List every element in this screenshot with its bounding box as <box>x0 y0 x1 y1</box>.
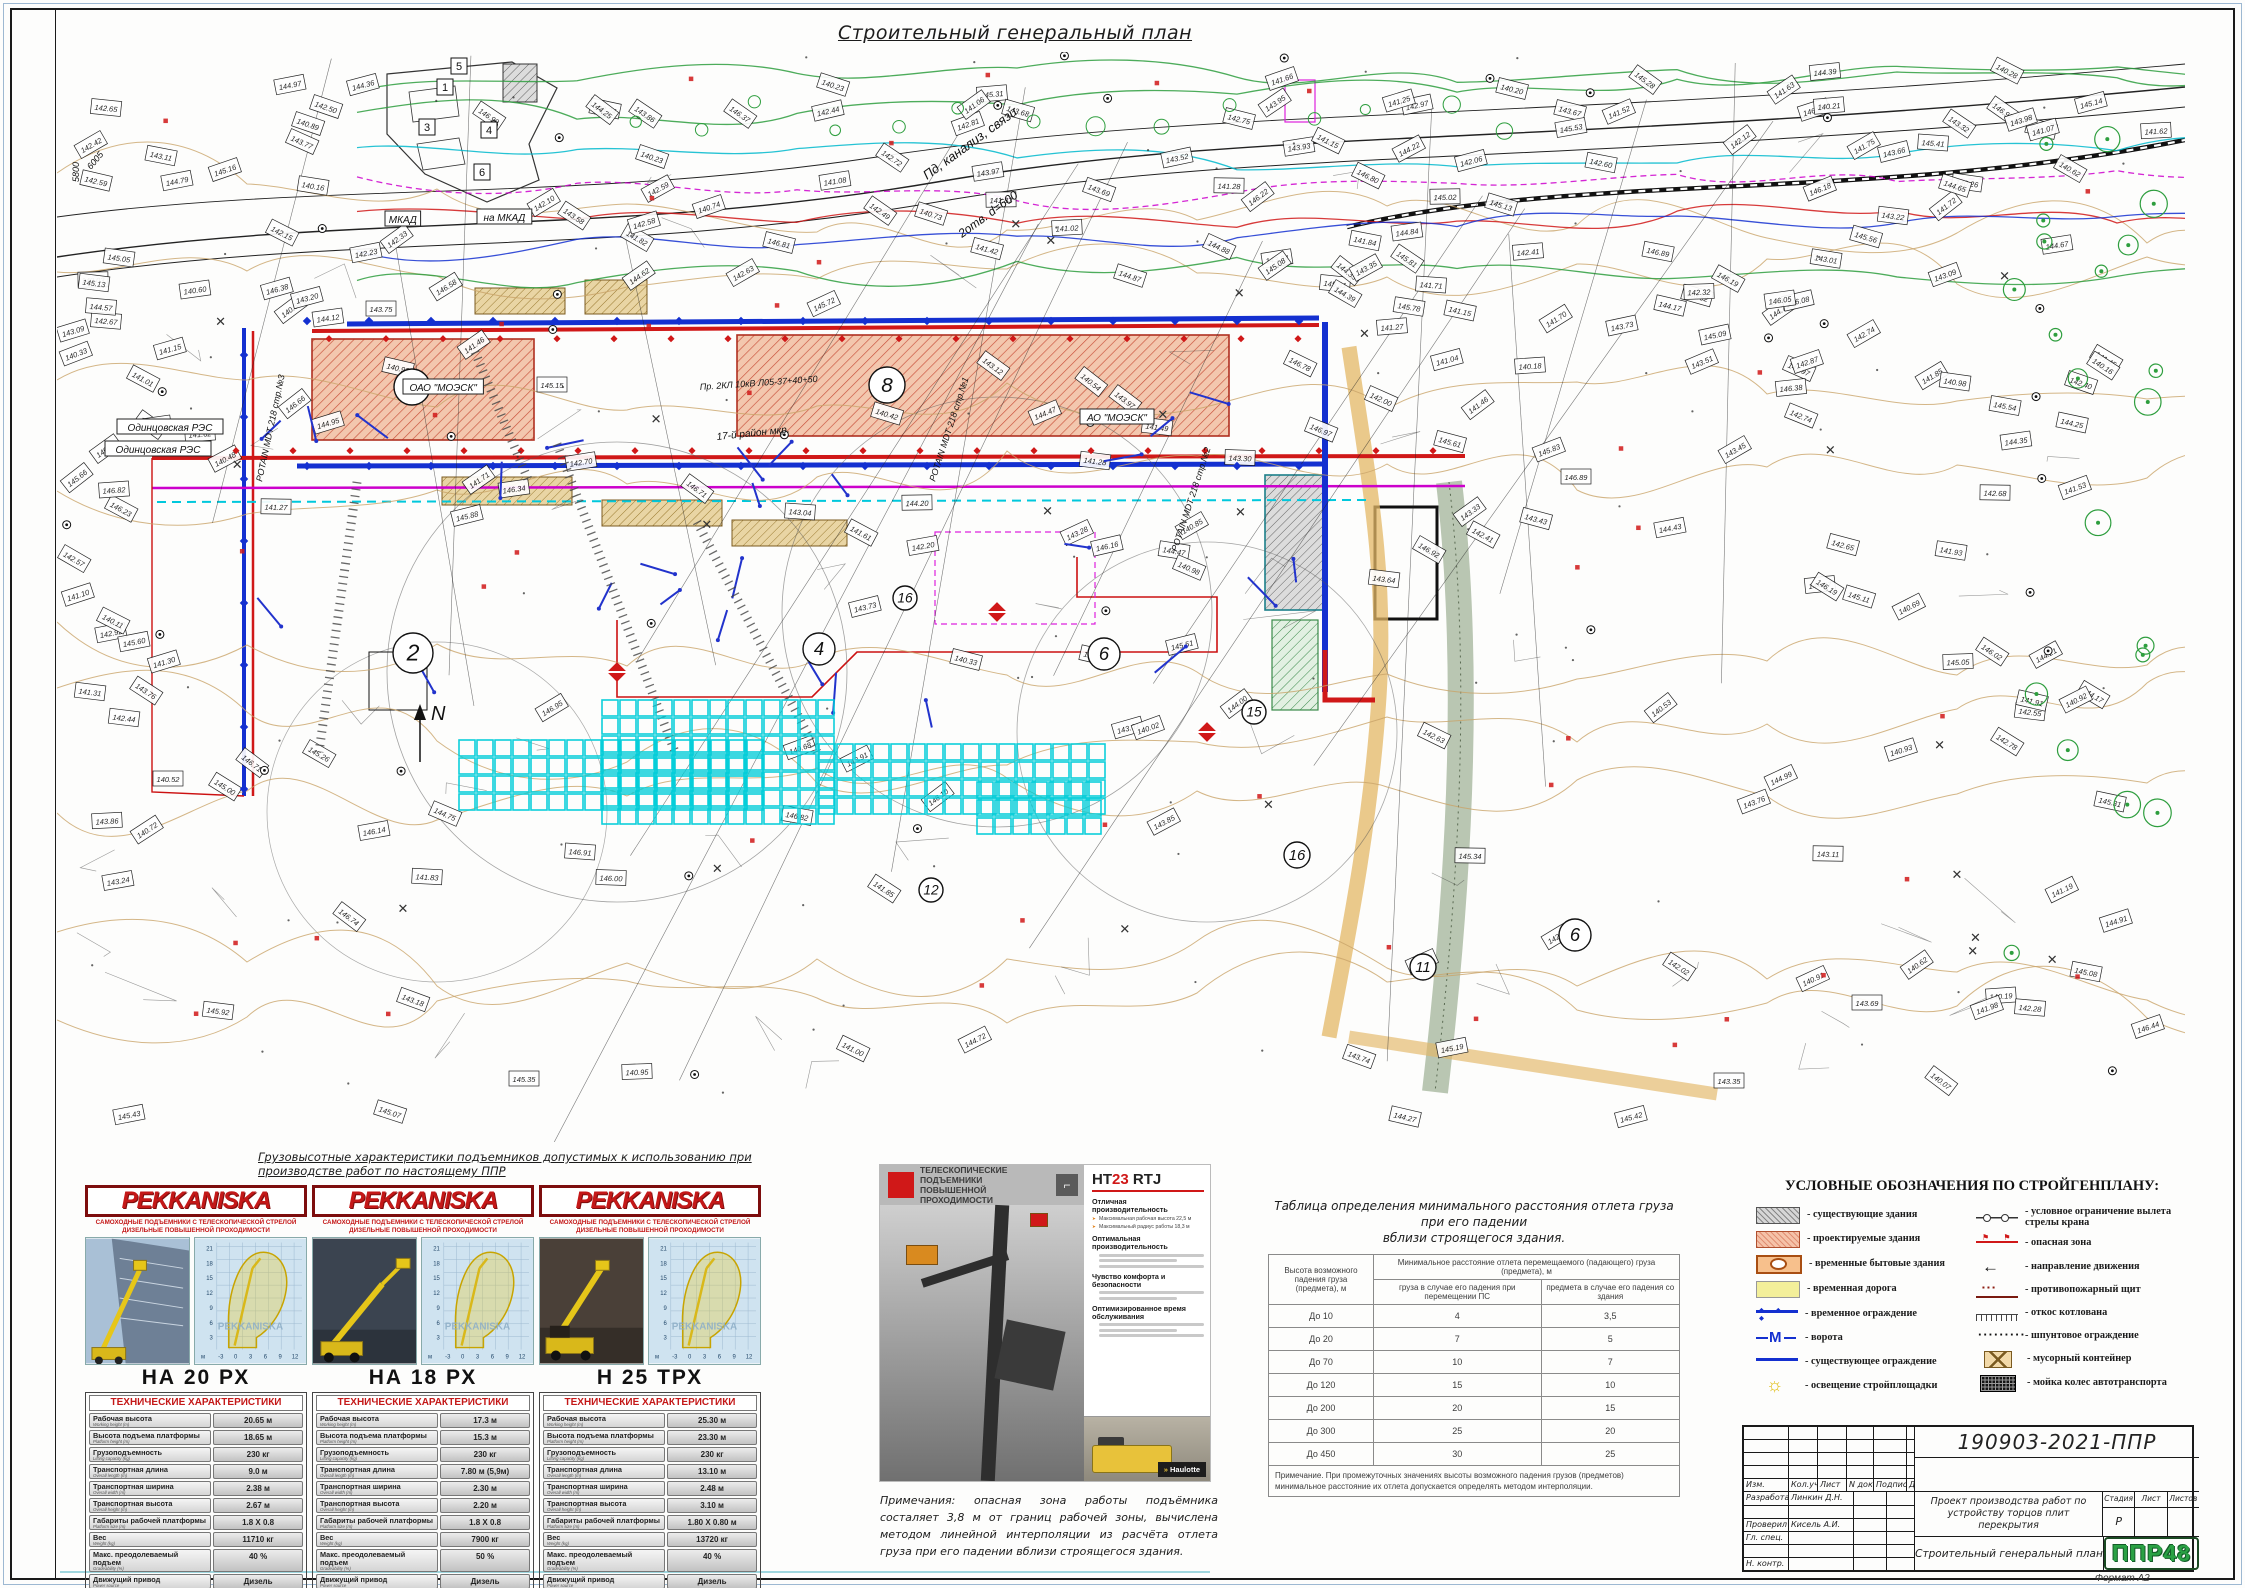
spec-value: 11710 кг <box>213 1532 303 1548</box>
spec-row: Рабочая высотаWorking height (m) 20.65 м <box>89 1413 303 1429</box>
chief-row: Гл. спец. <box>1744 1532 1914 1545</box>
fall-table-note: Примечание. При промежуточных значениях … <box>1269 1466 1680 1497</box>
spec-label-en: Working height (m) <box>547 1423 661 1428</box>
legend-item: - направление движения <box>1976 1259 2188 1275</box>
legend: УСЛОВНЫЕ ОБОЗНАЧЕНИЯ ПО СТРОЙГЕНПЛАНУ: -… <box>1756 1178 2188 1401</box>
svg-text:6: 6 <box>479 167 485 179</box>
col-podpis: Подпись <box>1874 1479 1907 1491</box>
svg-text:✕: ✕ <box>1359 326 1370 341</box>
svg-text:15: 15 <box>206 1276 213 1282</box>
spec-value: 2.48 м <box>667 1481 757 1497</box>
svg-text:м: м <box>655 1354 659 1360</box>
lift-model-title: НА 18 РХ <box>312 1366 534 1390</box>
sheets-value <box>2168 1508 2199 1536</box>
legend-item: - шпунтовое ограждение <box>1976 1328 2188 1344</box>
spec-label-en: Overall length (m) <box>93 1474 207 1479</box>
svg-text:АО "МОЭСК": АО "МОЭСК" <box>1086 413 1147 424</box>
spec-label-en: Gradeability (%) <box>547 1567 661 1572</box>
fall-table-row: До 20 7 5 <box>1269 1328 1680 1351</box>
spec-row: Транспортная длинаOverall length (m) 13.… <box>543 1464 757 1480</box>
spec-table: ТЕХНИЧЕСКИЕ ХАРАКТЕРИСТИКИ Рабочая высот… <box>312 1392 534 1588</box>
svg-text:16: 16 <box>1289 847 1306 864</box>
plan-circle-label: 16 <box>893 586 917 610</box>
brochure-section-2: Оптимальная производительность <box>1092 1235 1204 1268</box>
stage-value: Р <box>2103 1508 2135 1536</box>
spec-value: 40 % <box>213 1549 303 1573</box>
svg-text:145.15: 145.15 <box>541 381 565 390</box>
lift-card-ha18px: PEKKANISKA САМОХОДНЫЕ ПОДЪЕМНИКИ С ТЕЛЕС… <box>312 1185 534 1588</box>
fall-table-row: До 70 10 7 <box>1269 1351 1680 1374</box>
legend-swatch-icon <box>1976 1329 2018 1344</box>
project-name: Проект производства работ по устройству … <box>1915 1492 2103 1536</box>
fall-table-row: До 120 15 10 <box>1269 1374 1680 1397</box>
spec-label: Рабочая высотаWorking height (m) <box>89 1413 211 1429</box>
svg-text:145.35: 145.35 <box>513 1075 537 1084</box>
fine-print-line <box>1099 1265 1204 1268</box>
crane-icon: ⌐ <box>1056 1174 1078 1196</box>
lift-chassis <box>994 1319 1065 1390</box>
legend-label: - существующее ограждение <box>1805 1357 1937 1368</box>
legend-swatch-icon <box>1756 1310 1798 1328</box>
spec-label: Габариты рабочей платформыPlatform size … <box>543 1515 665 1531</box>
svg-text:✕: ✕ <box>1045 233 1056 248</box>
legend-label: - ворота <box>1805 1333 1843 1344</box>
spec-row: ГрузоподъемностьLifting capacity (kg) 23… <box>316 1447 530 1463</box>
sheets-label: Листов <box>2168 1492 2199 1507</box>
spec-value: 230 кг <box>213 1447 303 1463</box>
spec-label: Габариты рабочей платформыPlatform size … <box>89 1515 211 1531</box>
lift-model-title: Н 25 ТРХ <box>539 1366 761 1390</box>
model-prefix: HT <box>1092 1171 1112 1188</box>
reach-chart: 21181512963-3036912мPEKKANISKA <box>648 1237 761 1365</box>
building-distance-cell: 3,5 <box>1541 1305 1680 1328</box>
section-title: Оптимизированное время обслуживания <box>1092 1305 1204 1321</box>
building-distance-cell: 25 <box>1541 1443 1680 1466</box>
section-title: Оптимальная производительность <box>1092 1235 1204 1251</box>
col-height-header: Высота возможного падения груза (предмет… <box>1269 1255 1374 1305</box>
legend-swatch-icon <box>1984 1351 2012 1368</box>
spec-value: 2.67 м <box>213 1498 303 1514</box>
legend-swatch-icon <box>1976 1241 2018 1258</box>
spec-label-en: Platform size (m) <box>547 1525 661 1530</box>
spec-label-en: Platform height (m) <box>93 1440 207 1445</box>
svg-text:16: 16 <box>897 591 913 606</box>
svg-text:143.04: 143.04 <box>788 507 812 518</box>
col-data: Дата <box>1907 1479 1914 1491</box>
spec-label-en: Gradeability (%) <box>320 1567 434 1572</box>
spec-label-en: Lifting capacity (kg) <box>93 1457 207 1462</box>
spec-value: 7900 кг <box>440 1532 530 1548</box>
spec-row: Габариты рабочей платформыPlatform size … <box>543 1515 757 1531</box>
legend-item: - временные бытовые здания <box>1756 1255 1968 1274</box>
spec-label-en: Lifting capacity (kg) <box>547 1457 661 1462</box>
svg-text:Одинцовская РЭС: Одинцовская РЭС <box>128 423 214 434</box>
svg-text:✕: ✕ <box>712 861 723 876</box>
moving-distance-cell: 15 <box>1374 1374 1542 1397</box>
spec-label: Макс. преодолеваемый подъемGradeability … <box>89 1549 211 1573</box>
svg-text:141.02: 141.02 <box>1055 223 1079 233</box>
fine-print-line <box>1099 1334 1204 1337</box>
spec-row: Макс. преодолеваемый подъемGradeability … <box>316 1549 530 1573</box>
page-title: Строительный генеральный план <box>830 22 1200 44</box>
svg-text:N: N <box>431 703 446 725</box>
col-ndok: N док <box>1847 1479 1874 1491</box>
svg-text:1: 1 <box>442 82 448 94</box>
fine-print-line <box>1099 1259 1177 1262</box>
moving-distance-cell: 25 <box>1374 1420 1542 1443</box>
spec-value: 15.3 м <box>440 1430 530 1446</box>
lift-photo <box>539 1237 644 1365</box>
checked-name: Кисель А.И. <box>1789 1519 1854 1531</box>
svg-text:✕: ✕ <box>398 901 409 916</box>
legend-swatch-icon <box>1976 1314 2018 1321</box>
fall-table-title: Таблица определения минимального расстоя… <box>1268 1198 1680 1246</box>
building-distance-cell: 15 <box>1541 1397 1680 1420</box>
legend-swatch-icon <box>1756 1207 1800 1224</box>
plan-circle-label: 16 <box>1284 842 1310 868</box>
spec-row: Макс. преодолеваемый подъемGradeability … <box>543 1549 757 1573</box>
legend-item: - временное ограждение <box>1756 1305 1968 1323</box>
legend-item: - мойка колес автотранспорта <box>1976 1375 2188 1392</box>
fine-print-line <box>1099 1329 1177 1332</box>
building-distance-cell: 7 <box>1541 1351 1680 1374</box>
checked-label: Проверил <box>1744 1519 1789 1531</box>
spec-row: Габариты рабочей платформыPlatform size … <box>316 1515 530 1531</box>
legend-item: - временная дорога <box>1756 1281 1968 1298</box>
lift-basket <box>906 1245 938 1265</box>
height-cell: До 200 <box>1269 1397 1374 1420</box>
haulotte-brochure: ТЕЛЕСКОПИЧЕСКИЕ ПОДЪЕМНИКИ ПОВЫШЕННОЙ ПР… <box>880 1165 1210 1481</box>
spec-label-en: Overall height (m) <box>547 1508 661 1513</box>
plan-circle-label: 4 <box>803 633 835 665</box>
svg-text:11: 11 <box>1415 959 1431 976</box>
legend-swatch-icon <box>1976 1283 2018 1298</box>
legend-label: - опасная зона <box>2025 1238 2091 1249</box>
svg-text:6: 6 <box>1570 924 1581 945</box>
svg-text:141.62: 141.62 <box>2144 126 2168 136</box>
plan-box-label: ОАО "МОЭСК" <box>403 379 483 394</box>
svg-text:ОАО "МОЭСК": ОАО "МОЭСК" <box>409 383 477 394</box>
spec-value: 7.80 м (5,9м) <box>440 1464 530 1480</box>
sheet-value <box>2135 1508 2167 1536</box>
spec-table-title: ТЕХНИЧЕСКИЕ ХАРАКТЕРИСТИКИ <box>316 1395 530 1411</box>
sheet-margin-line <box>55 8 56 1580</box>
svg-text:-3: -3 <box>445 1354 451 1360</box>
height-cell: До 20 <box>1269 1328 1374 1351</box>
svg-text:✕: ✕ <box>2047 952 2058 967</box>
legend-item: - ворота <box>1756 1330 1968 1346</box>
height-cell: До 300 <box>1269 1420 1374 1443</box>
subtitle-line1: САМОХОДНЫЕ ПОДЪЕМНИКИ С ТЕЛЕСКОПИЧЕСКОЙ … <box>96 1219 297 1226</box>
moving-distance-cell: 20 <box>1374 1397 1542 1420</box>
fine-print-line <box>1099 1323 1204 1326</box>
spec-label: ГрузоподъемностьLifting capacity (kg) <box>316 1447 438 1463</box>
blank-row <box>1744 1506 1914 1519</box>
building-number: 1 <box>437 79 453 95</box>
revision-blank-row <box>1744 1427 1914 1440</box>
spec-value: 13.10 м <box>667 1464 757 1480</box>
spec-row: Транспортная длинаOverall length (m) 7.8… <box>316 1464 530 1480</box>
spec-label: Транспортная длинаOverall length (m) <box>89 1464 211 1480</box>
spec-label: Габариты рабочей платформыPlatform size … <box>316 1515 438 1531</box>
spec-label-en: Lifting capacity (kg) <box>320 1457 434 1462</box>
spec-value: 1.80 X 0.80 м <box>667 1515 757 1531</box>
lift-card-subtitle: САМОХОДНЫЕ ПОДЪЕМНИКИ С ТЕЛЕСКОПИЧЕСКОЙ … <box>539 1219 761 1234</box>
revision-header-row: Изм. Кол.уч Лист N док Подпись Дата <box>1744 1479 1914 1492</box>
plan-box-label: Одинцовская РЭС <box>105 441 211 456</box>
spec-value: 2.20 м <box>440 1498 530 1514</box>
legend-label: - условное ограничение вылета стрелы кра… <box>2025 1207 2188 1228</box>
spec-row: Транспортная ширинаOverall width (m) 2.4… <box>543 1481 757 1497</box>
svg-text:-3: -3 <box>218 1354 224 1360</box>
lift-photo <box>85 1237 190 1365</box>
spec-label: Макс. преодолеваемый подъемGradeability … <box>316 1549 438 1573</box>
col-building-header: предмета в случае его падения со здания <box>1541 1280 1680 1305</box>
sheet-label: Лист <box>2135 1492 2167 1507</box>
legend-label: - шпунтовое ограждение <box>2025 1331 2139 1342</box>
building-distance-cell: 20 <box>1541 1420 1680 1443</box>
plan-circle-label: 11 <box>1410 954 1436 980</box>
header-line2: ПОВЫШЕННОЙ ПРОХОДИМОСТИ <box>920 1185 993 1205</box>
svg-text:143.75: 143.75 <box>370 305 394 314</box>
spec-label-en: Working height (m) <box>320 1423 434 1428</box>
svg-text:✕: ✕ <box>1999 268 2010 283</box>
lift-card-h25tpx: PEKKANISKA САМОХОДНЫЕ ПОДЪЕМНИКИ С ТЕЛЕС… <box>539 1185 761 1588</box>
spec-table: ТЕХНИЧЕСКИЕ ХАРАКТЕРИСТИКИ Рабочая высот… <box>85 1392 307 1588</box>
spec-label-en: Platform size (m) <box>320 1525 434 1530</box>
svg-text:141.27: 141.27 <box>264 503 288 512</box>
spec-label: Транспортная длинаOverall length (m) <box>543 1464 665 1480</box>
svg-text:2: 2 <box>406 640 420 666</box>
col-distance-header: Минимальное расстояние отлета перемещаем… <box>1374 1255 1680 1280</box>
spec-row: Макс. преодолеваемый подъемGradeability … <box>89 1549 303 1573</box>
danger-zone-note: Примечания: опасная зона работы подъёмни… <box>880 1492 1218 1560</box>
legend-item: - существующее ограждение <box>1756 1353 1968 1371</box>
svg-text:МКАД: МКАД <box>389 215 417 226</box>
spec-row: Движущий приводPower source Дизель <box>543 1574 757 1588</box>
plan-circle-label: 8 <box>869 367 905 403</box>
building-number: 3 <box>419 119 435 135</box>
plan-box-label: МКАД <box>385 211 421 226</box>
spec-label-ru: Макс. преодолеваемый подъем <box>93 1550 207 1567</box>
spec-rows: Рабочая высотаWorking height (m) 17.3 м … <box>314 1413 532 1588</box>
spec-label: ГрузоподъемностьLifting capacity (kg) <box>543 1447 665 1463</box>
lift-photo <box>312 1237 417 1365</box>
spec-value: 2.38 м <box>213 1481 303 1497</box>
brochure-header: ТЕЛЕСКОПИЧЕСКИЕ ПОДЪЕМНИКИ ПОВЫШЕННОЙ ПР… <box>880 1165 1084 1205</box>
lift-card-ha20px: PEKKANISKA САМОХОДНЫЕ ПОДЪЕМНИКИ С ТЕЛЕС… <box>85 1185 307 1588</box>
svg-text:145.34: 145.34 <box>1458 852 1481 861</box>
spec-label-en: Overall width (m) <box>320 1491 434 1496</box>
legend-right-column: - условное ограничение вылета стрелы кра… <box>1976 1207 2188 1401</box>
legend-swatch-icon <box>1976 1260 2018 1275</box>
spec-value: 1.8 X 0.8 <box>440 1515 530 1531</box>
legend-label: - существующие здания <box>1807 1210 1917 1221</box>
svg-text:143.11: 143.11 <box>1817 850 1840 859</box>
svg-text:145.02: 145.02 <box>1433 193 1457 202</box>
building-distance-cell: 10 <box>1541 1374 1680 1397</box>
pekkaniska-logo: PEKKANISKA <box>539 1185 761 1217</box>
spec-table-title: ТЕХНИЧЕСКИЕ ХАРАКТЕРИСТИКИ <box>543 1395 757 1411</box>
spec-label-ru: Макс. преодолеваемый подъем <box>547 1550 661 1567</box>
lift-figure: 21181512963-3036912мPEKKANISKA <box>312 1237 534 1363</box>
svg-text:21: 21 <box>433 1246 440 1252</box>
svg-text:3: 3 <box>424 122 430 134</box>
spec-label: Транспортная ширинаOverall width (m) <box>543 1481 665 1497</box>
spec-label-en: Working height (m) <box>93 1423 207 1428</box>
svg-text:143.30: 143.30 <box>1228 454 1252 464</box>
svg-text:PEKKANISKA: PEKKANISKA <box>672 1322 737 1333</box>
spec-label: ГрузоподъемностьLifting capacity (kg) <box>89 1447 211 1463</box>
svg-text:12: 12 <box>746 1354 753 1360</box>
spec-value: 230 кг <box>440 1447 530 1463</box>
fine-print-line <box>1099 1254 1204 1257</box>
svg-text:✕: ✕ <box>1234 285 1245 300</box>
svg-text:✕: ✕ <box>1970 930 1981 945</box>
svg-text:4: 4 <box>486 125 492 137</box>
spec-label-en: Overall height (m) <box>320 1508 434 1513</box>
bullet: Максимальный радиус работы 18,3 м <box>1092 1224 1204 1230</box>
fall-title-line2: вблизи строящегося здания. <box>1383 1231 1565 1245</box>
svg-text:PEKKANISKA: PEKKANISKA <box>218 1322 283 1333</box>
legend-item: - проектируемые здания <box>1756 1231 1968 1248</box>
legend-swatch-icon <box>1976 1210 2018 1225</box>
plan-diagonal-label: POTAIN MDT 218 стр.№3 <box>254 374 286 483</box>
col-list: Лист <box>1818 1479 1847 1491</box>
model-number: 23 <box>1112 1171 1129 1188</box>
fall-title-line1: Таблица определения минимального расстоя… <box>1274 1199 1673 1229</box>
building-number: 4 <box>481 122 497 138</box>
section-title: Чувство комфорта и безопасности <box>1092 1273 1204 1289</box>
spec-row: Транспортная ширинаOverall width (m) 2.3… <box>316 1481 530 1497</box>
spec-rows: Рабочая высотаWorking height (m) 25.30 м… <box>541 1413 759 1588</box>
haulotte-logo: » Haulotte <box>1158 1462 1206 1477</box>
spec-row: ВесWeight (kg) 13720 кг <box>543 1532 757 1548</box>
reach-chart: 21181512963-3036912мPEKKANISKA <box>421 1237 534 1365</box>
ppr48-logo: ППР48 <box>2104 1537 2199 1570</box>
subtitle-line1: САМОХОДНЫЕ ПОДЪЕМНИКИ С ТЕЛЕСКОПИЧЕСКОЙ … <box>323 1219 524 1226</box>
site-plan-canvas: 140.23141.27141.45142.44141.46142.44146.… <box>57 52 2185 1142</box>
pekkaniska-logo: PEKKANISKA <box>312 1185 534 1217</box>
spec-label: Высота подъема платформыPlatform height … <box>543 1430 665 1446</box>
spec-row: Рабочая высотаWorking height (m) 17.3 м <box>316 1413 530 1429</box>
blank-row <box>1744 1545 1914 1558</box>
subtitle-line2: ДИЗЕЛЬНЫЕ ПОВЫШЕННОЙ ПРОХОДИМОСТИ <box>349 1227 497 1234</box>
spec-label: ВесWeight (kg) <box>316 1532 438 1548</box>
lift-card-subtitle: САМОХОДНЫЕ ПОДЪЕМНИКИ С ТЕЛЕСКОПИЧЕСКОЙ … <box>85 1219 307 1234</box>
spec-label-en: Overall width (m) <box>93 1491 207 1496</box>
section-title: Отличная производительность <box>1092 1198 1204 1214</box>
spec-row: Габариты рабочей платформыPlatform size … <box>89 1515 303 1531</box>
spec-value: 2.30 м <box>440 1481 530 1497</box>
spec-label-en: Overall length (m) <box>320 1474 434 1479</box>
subtitle-line1: САМОХОДНЫЕ ПОДЪЕМНИКИ С ТЕЛЕСКОПИЧЕСКОЙ … <box>550 1219 751 1226</box>
svg-text:6: 6 <box>1099 643 1110 664</box>
spec-rows: Рабочая высотаWorking height (m) 20.65 м… <box>87 1413 305 1588</box>
lift-model-title: НА 20 РХ <box>85 1366 307 1390</box>
svg-text:12: 12 <box>433 1291 440 1297</box>
svg-text:143.86: 143.86 <box>95 816 119 826</box>
svg-text:15: 15 <box>1246 705 1262 720</box>
col-koluch: Кол.уч <box>1789 1479 1818 1491</box>
spec-label: Транспортная высотаOverall height (m) <box>316 1498 438 1514</box>
title-block-revision-grid: Изм. Кол.уч Лист N док Подпись Дата Разр… <box>1744 1427 1915 1570</box>
drawing-title: Строительный генеральный план <box>1915 1537 2104 1570</box>
spec-label-en: Platform height (m) <box>320 1440 434 1445</box>
spec-label-en: Overall width (m) <box>547 1491 661 1496</box>
legend-item: - опасная зона <box>1976 1235 2188 1252</box>
svg-text:12: 12 <box>923 883 939 898</box>
battery-icon <box>1030 1213 1048 1227</box>
header-line1: ТЕЛЕСКОПИЧЕСКИЕ ПОДЪЕМНИКИ <box>920 1165 1007 1185</box>
col-moving-header: груза в случае его падения при перемещен… <box>1374 1280 1542 1305</box>
svg-text:142.68: 142.68 <box>1983 489 2007 498</box>
moving-distance-cell: 7 <box>1374 1328 1542 1351</box>
svg-text:✕: ✕ <box>1042 503 1053 518</box>
ncontrol-label: Н. контр. <box>1744 1558 1789 1570</box>
fall-table: Высота возможного падения груза (предмет… <box>1268 1254 1680 1497</box>
legend-title: УСЛОВНЫЕ ОБОЗНАЧЕНИЯ ПО СТРОЙГЕНПЛАНУ: <box>1756 1178 2188 1195</box>
stage-label: Стадия <box>2103 1492 2135 1507</box>
svg-text:✕: ✕ <box>651 411 662 426</box>
svg-text:✕: ✕ <box>1825 443 1836 458</box>
brochure-section-3: Чувство комфорта и безопасности <box>1092 1273 1204 1300</box>
spec-row: Высота подъема платформыPlatform height … <box>89 1430 303 1446</box>
building-distance-cell: 5 <box>1541 1328 1680 1351</box>
section-bullets: Максимальная рабочая высота 22,5 мМаксим… <box>1092 1216 1204 1230</box>
developed-name: Линкин Д.Н. <box>1789 1492 1854 1504</box>
legend-swatch-icon <box>1756 1281 1800 1298</box>
spec-label-en: Power source <box>93 1584 207 1588</box>
spec-row: Движущий приводPower source Дизель <box>89 1574 303 1588</box>
spec-label: Высота подъема платформыPlatform height … <box>316 1430 438 1446</box>
spec-label: Транспортная ширинаOverall width (m) <box>89 1481 211 1497</box>
svg-text:145.05: 145.05 <box>1946 658 1970 668</box>
empty-band <box>1915 1458 2199 1492</box>
fall-table-body: До 10 4 3,5 До 20 7 5 До 70 10 7 <box>1269 1305 1680 1466</box>
fall-distance-block: Таблица определения минимального расстоя… <box>1268 1198 1680 1497</box>
spec-value: Дизель <box>667 1574 757 1588</box>
spec-row: Транспортная высотаOverall height (m) 2.… <box>89 1498 303 1514</box>
revision-blank-row <box>1744 1453 1914 1466</box>
spec-label: Макс. преодолеваемый подъемGradeability … <box>543 1549 665 1573</box>
legend-item: - откос котлована <box>1976 1305 2188 1321</box>
svg-text:-3: -3 <box>672 1354 678 1360</box>
spec-label: Рабочая высотаWorking height (m) <box>543 1413 665 1429</box>
legend-swatch-icon <box>1756 1231 1800 1248</box>
plan-diagonal-label: 5800 <box>71 162 81 182</box>
spec-row: ВесWeight (kg) 11710 кг <box>89 1532 303 1548</box>
spec-label-en: Overall height (m) <box>93 1508 207 1513</box>
spec-label: ВесWeight (kg) <box>89 1532 211 1548</box>
spec-row: Транспортная длинаOverall length (m) 9.0… <box>89 1464 303 1480</box>
svg-text:15: 15 <box>660 1276 667 1282</box>
moving-distance-cell: 10 <box>1374 1351 1542 1374</box>
plan-box-label: Одинцовская РЭС <box>117 419 223 434</box>
spec-label-ru: Макс. преодолеваемый подъем <box>320 1550 434 1567</box>
svg-text:на МКАД: на МКАД <box>483 213 525 224</box>
legend-label: - откос котлована <box>2025 1308 2107 1319</box>
spec-label: Транспортная высотаOverall height (m) <box>543 1498 665 1514</box>
legend-label: - противопожарный щит <box>2025 1285 2141 1296</box>
svg-text:✕: ✕ <box>1157 407 1168 422</box>
height-cell: До 70 <box>1269 1351 1374 1374</box>
spec-value: 20.65 м <box>213 1413 303 1429</box>
svg-text:12: 12 <box>519 1354 526 1360</box>
brand-text: Haulotte <box>1170 1465 1200 1474</box>
svg-text:4: 4 <box>814 638 824 659</box>
brochure-model: HT23 RTJ <box>1092 1171 1204 1192</box>
